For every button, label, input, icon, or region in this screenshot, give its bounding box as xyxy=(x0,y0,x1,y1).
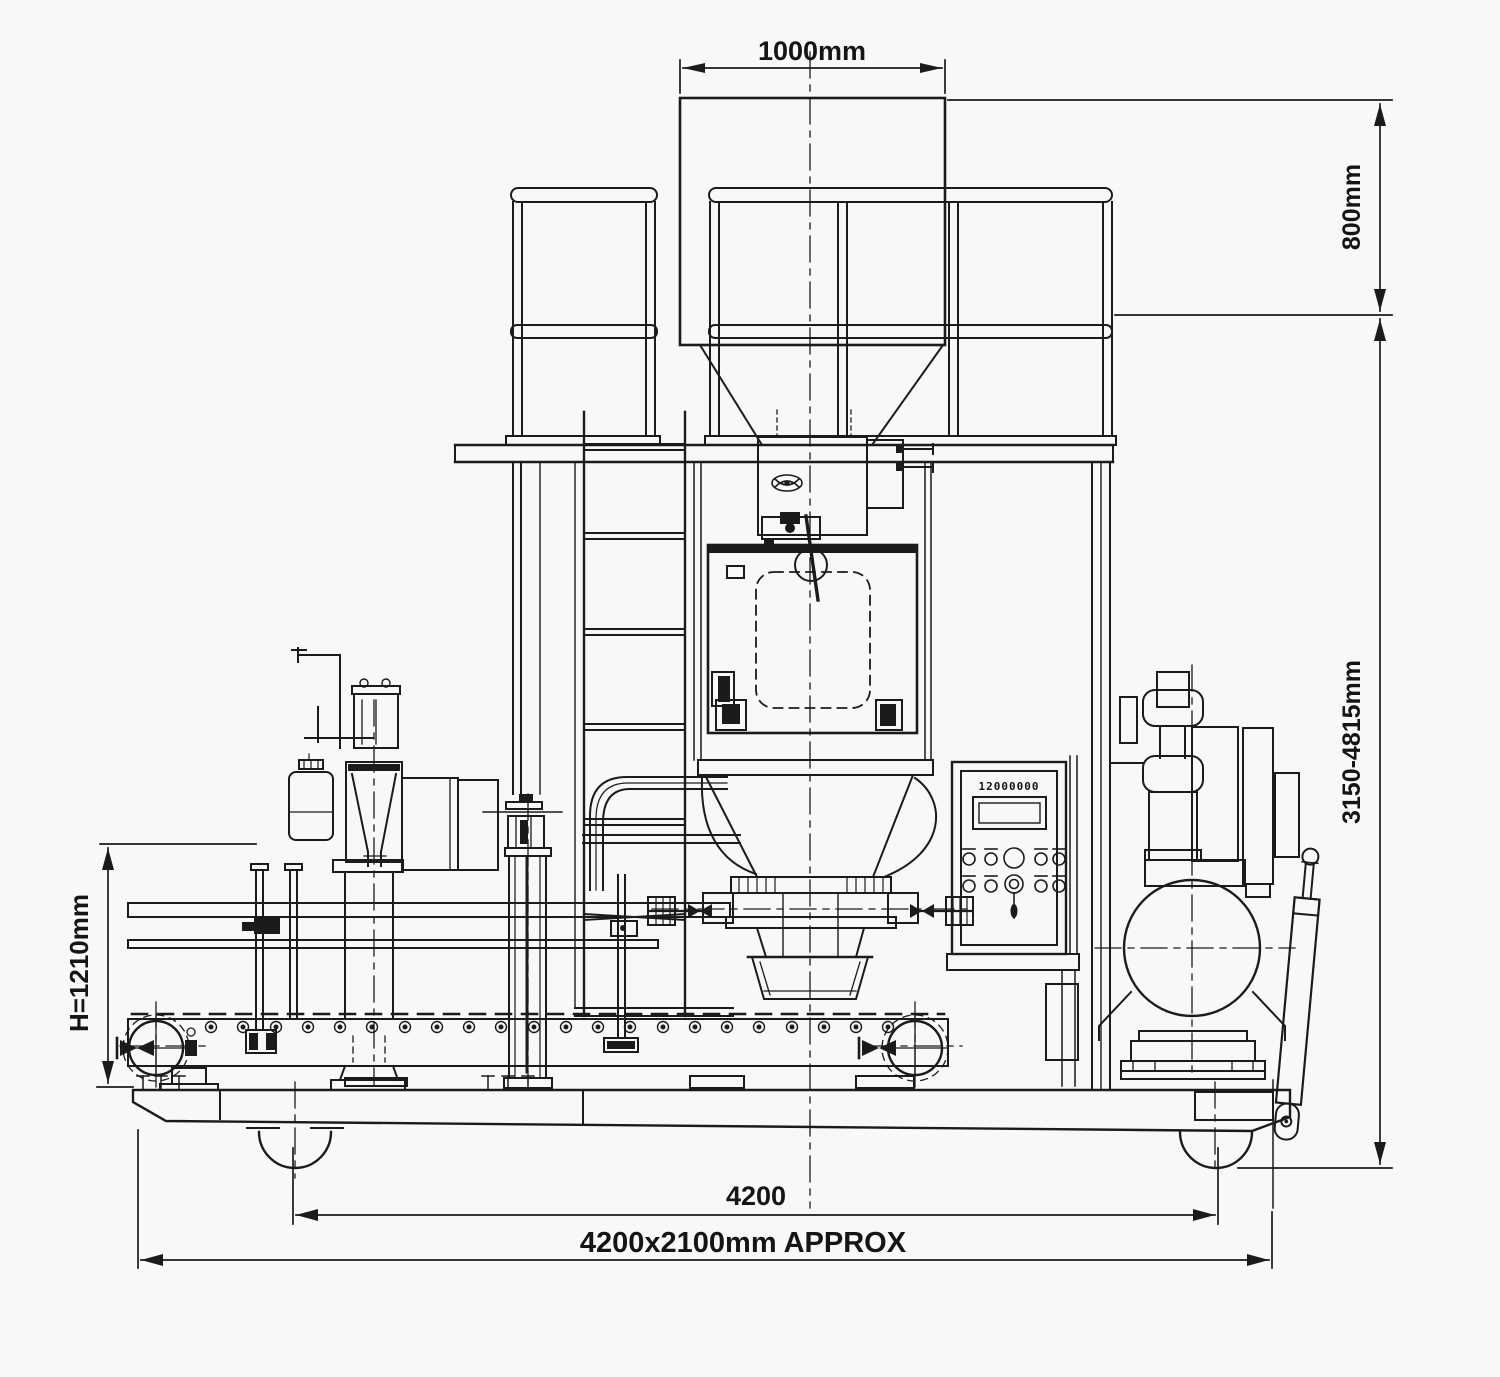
applicator-pedestal xyxy=(331,860,405,1090)
key-switch xyxy=(1005,875,1023,918)
conveyor-tail-pulley xyxy=(859,1015,948,1081)
guard-railing xyxy=(506,188,1116,445)
dim-overall-height-label: 3150-4815mm xyxy=(1338,660,1366,824)
conveyor-rollers xyxy=(206,1022,894,1033)
blower-unit xyxy=(1099,672,1299,1079)
bag-support-rails xyxy=(128,864,730,1053)
dim-upper-right xyxy=(948,100,1392,315)
sight-glass xyxy=(772,475,802,491)
bag-gripper-posts xyxy=(242,864,302,1053)
bagging-machine-drawing: 1000mm 800mm 3150-4815mm H=1210mm 4200 4… xyxy=(0,0,1500,1377)
panel-buttons xyxy=(963,848,1065,918)
bag-applicator-unit xyxy=(289,648,498,1090)
feed-chute xyxy=(758,437,867,535)
dim-conveyor-height-label: H=1210mm xyxy=(64,894,94,1032)
glue-pot xyxy=(289,754,333,840)
dim-overall-height xyxy=(1238,319,1392,1168)
applicator-rear-panel xyxy=(458,780,498,870)
weigh-hopper xyxy=(694,462,931,760)
panel-display-value: 12000000 xyxy=(979,780,1040,793)
castor-wheel-right xyxy=(1180,1132,1252,1168)
center-bag-gripper-post xyxy=(604,875,638,1052)
base-frame xyxy=(133,1076,1290,1168)
hydraulic-cylinder xyxy=(1273,848,1324,1141)
dim-footprint-label: 4200x2100mm APPROX xyxy=(580,1227,907,1259)
dim-bottom-span-label: 4200 xyxy=(726,1181,786,1211)
panel-screen xyxy=(973,797,1046,829)
dim-top-width-label: 1000mm xyxy=(758,36,866,66)
feed-pipe xyxy=(590,777,727,890)
panel-main-button xyxy=(1004,848,1024,868)
dim-upper-right-label: 800mm xyxy=(1338,164,1366,250)
engineering-drawing-canvas: 1000mm 800mm 3150-4815mm H=1210mm 4200 4… xyxy=(0,0,1500,1377)
feed-valve xyxy=(762,512,820,600)
